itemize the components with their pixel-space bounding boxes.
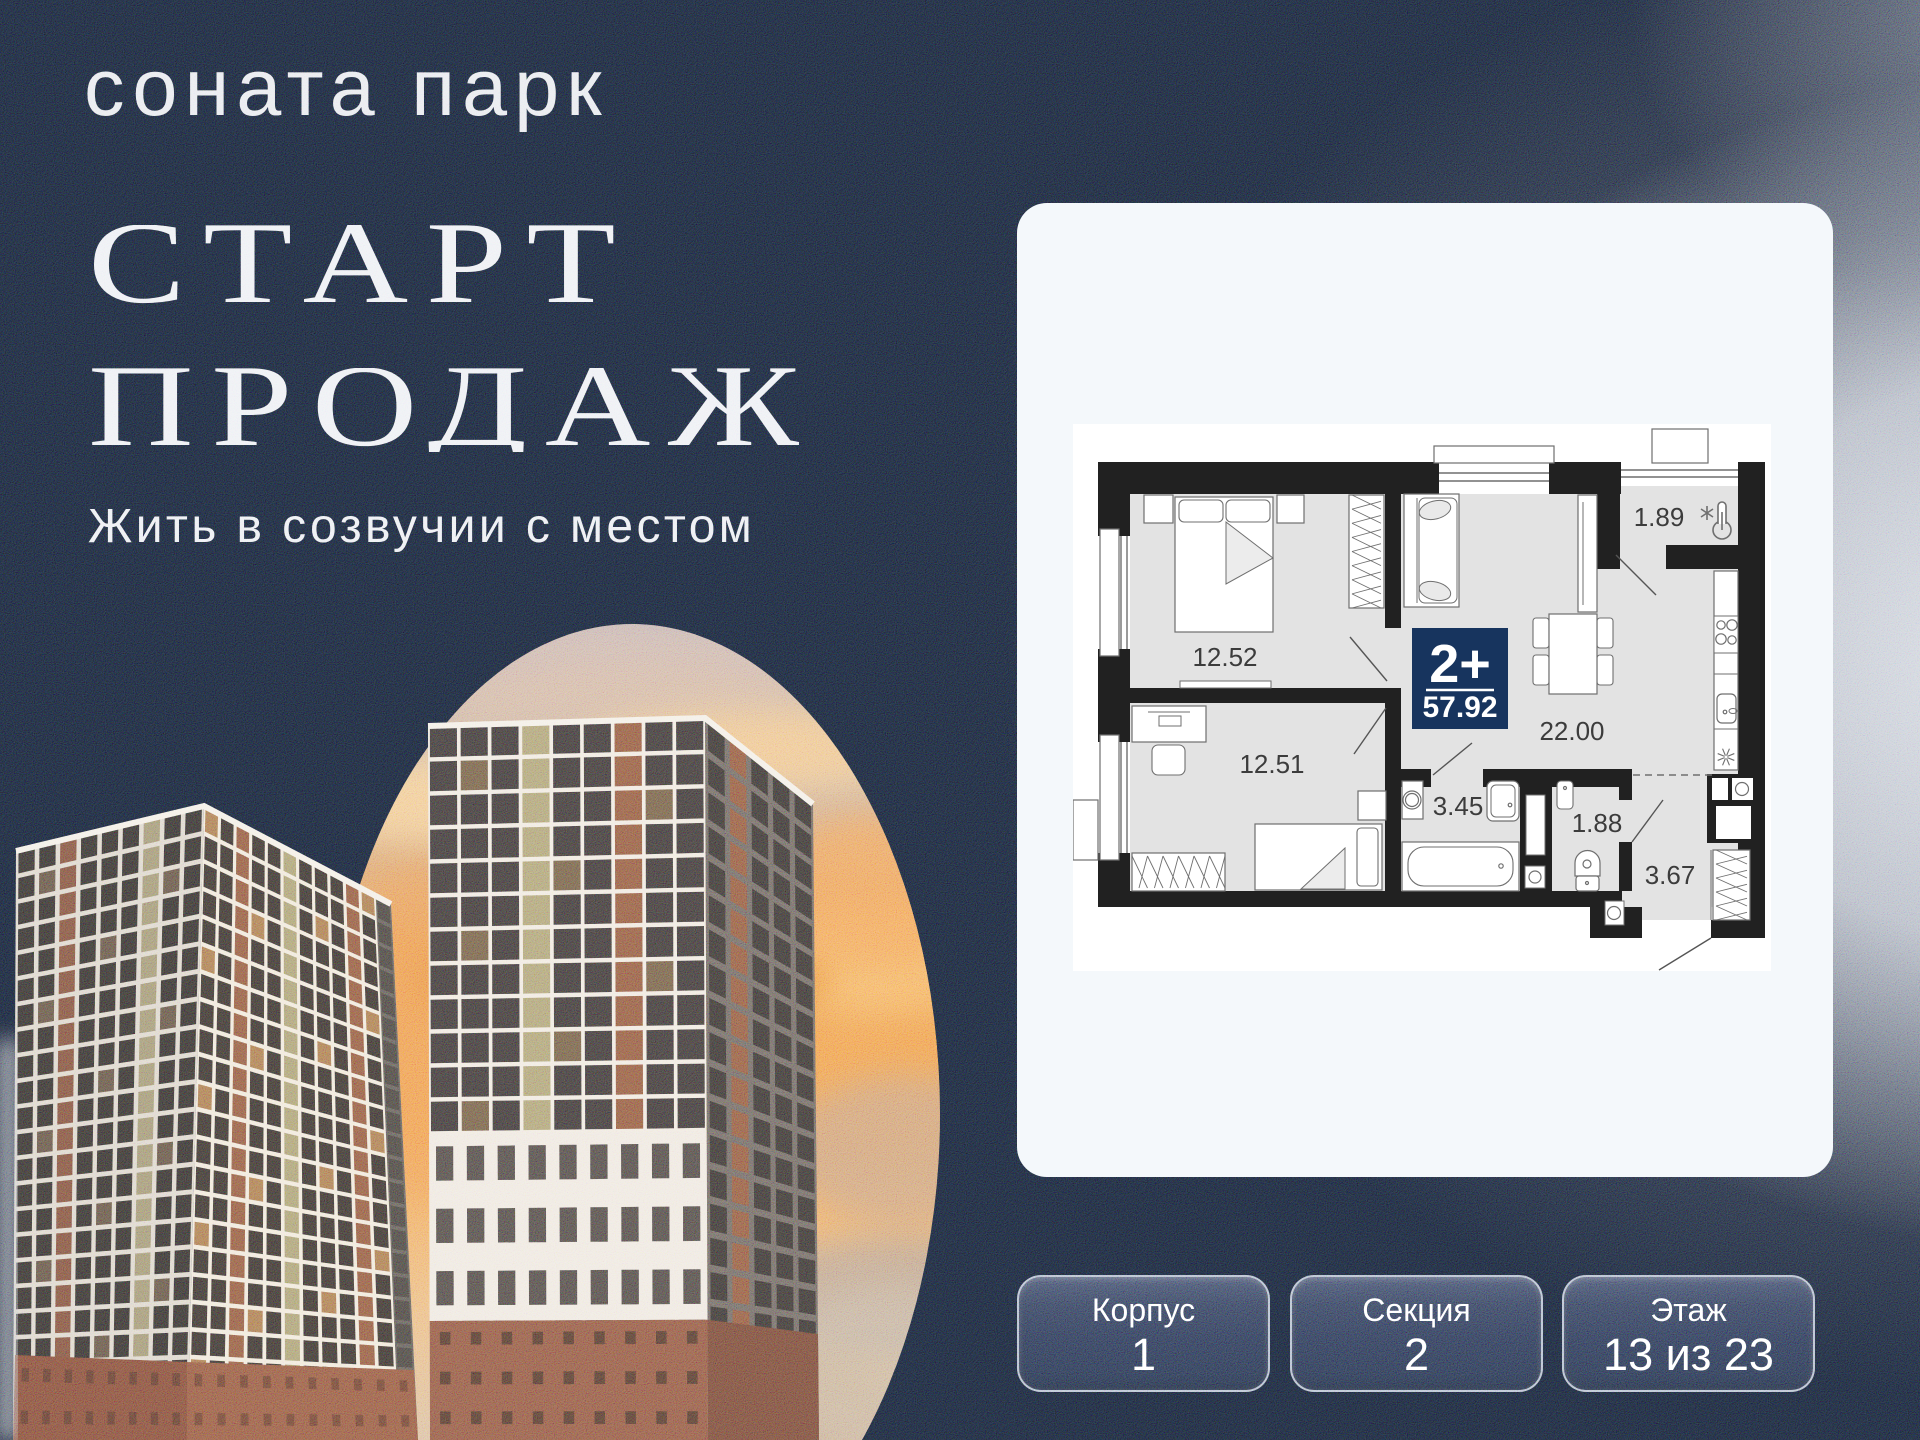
svg-text:3.67: 3.67	[1645, 860, 1696, 890]
svg-text:3.45: 3.45	[1433, 791, 1484, 821]
svg-text:57.92: 57.92	[1422, 691, 1497, 724]
svg-text:22.00: 22.00	[1539, 716, 1604, 746]
svg-text:2+: 2+	[1429, 634, 1491, 694]
svg-text:1.89: 1.89	[1634, 502, 1685, 532]
svg-text:1.88: 1.88	[1572, 808, 1623, 838]
svg-text:12.51: 12.51	[1239, 749, 1304, 779]
svg-text:12.52: 12.52	[1192, 642, 1257, 672]
